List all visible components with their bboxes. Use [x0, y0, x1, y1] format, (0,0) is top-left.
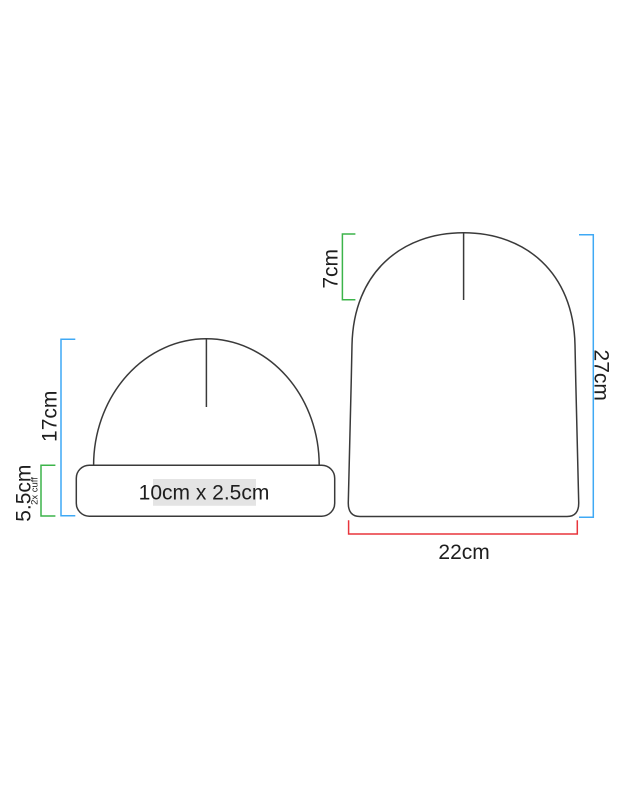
svg-text:2x cuff: 2x cuff	[30, 477, 41, 505]
svg-text:22cm: 22cm	[438, 541, 489, 564]
svg-text:17cm: 17cm	[39, 391, 62, 442]
svg-text:10cm x 2.5cm: 10cm x 2.5cm	[139, 482, 270, 505]
svg-text:7cm: 7cm	[319, 249, 342, 289]
svg-text:27cm: 27cm	[590, 350, 613, 401]
